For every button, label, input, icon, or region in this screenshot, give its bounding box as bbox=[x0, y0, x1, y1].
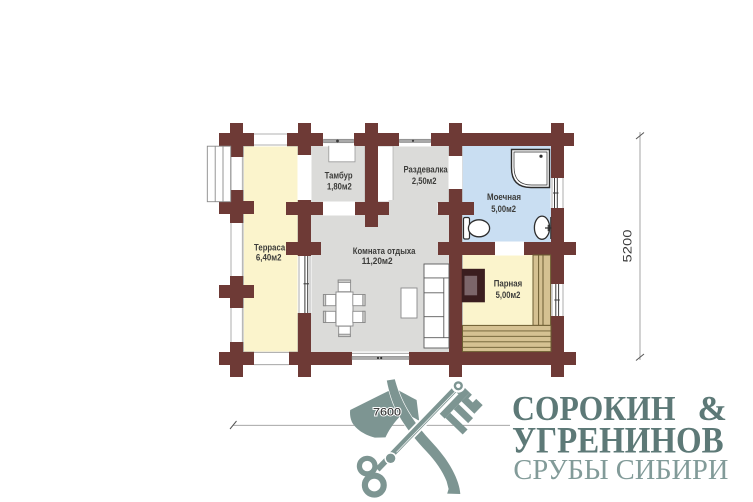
svg-text:5200: 5200 bbox=[621, 229, 635, 262]
svg-text:Раздевалка: Раздевалка bbox=[404, 165, 449, 176]
svg-text:11,20м2: 11,20м2 bbox=[362, 256, 393, 267]
svg-text:7600: 7600 bbox=[373, 407, 401, 419]
svg-text:Тамбур: Тамбур bbox=[325, 170, 353, 181]
svg-text:5,00м2: 5,00м2 bbox=[496, 290, 521, 301]
svg-text:1,80м2: 1,80м2 bbox=[327, 181, 352, 192]
svg-text:Моечная: Моечная bbox=[487, 192, 521, 203]
svg-text:5,00м2: 5,00м2 bbox=[491, 204, 516, 215]
svg-text:СРУБЫ СИБИРИ: СРУБЫ СИБИРИ bbox=[513, 454, 728, 486]
svg-text:2,50м2: 2,50м2 bbox=[412, 176, 437, 187]
svg-text:Парная: Парная bbox=[494, 278, 523, 289]
svg-text:6,40м2: 6,40м2 bbox=[256, 252, 282, 263]
